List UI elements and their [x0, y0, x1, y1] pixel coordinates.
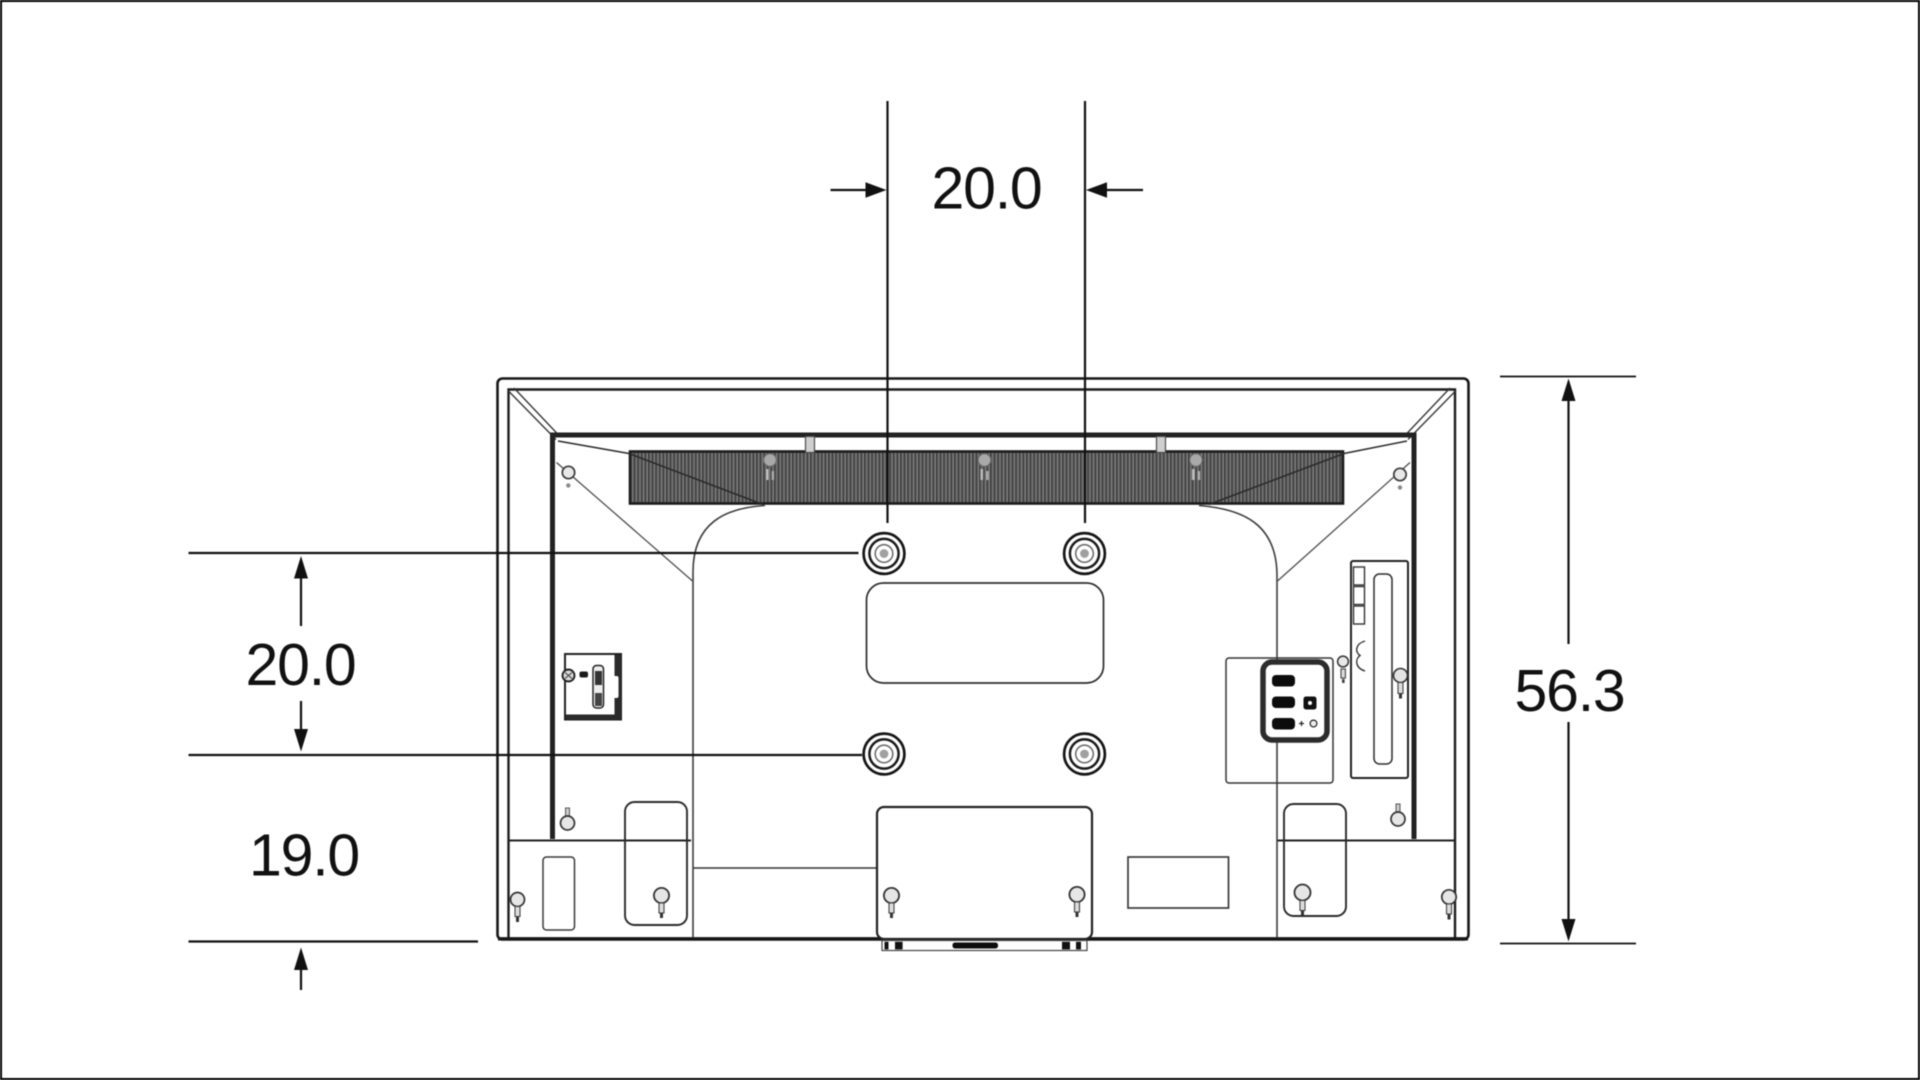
svg-text:56.3: 56.3 [1514, 658, 1624, 724]
svg-text:20.0: 20.0 [931, 156, 1041, 222]
svg-text:20.0: 20.0 [245, 632, 355, 698]
svg-text:19.0: 19.0 [249, 823, 359, 889]
